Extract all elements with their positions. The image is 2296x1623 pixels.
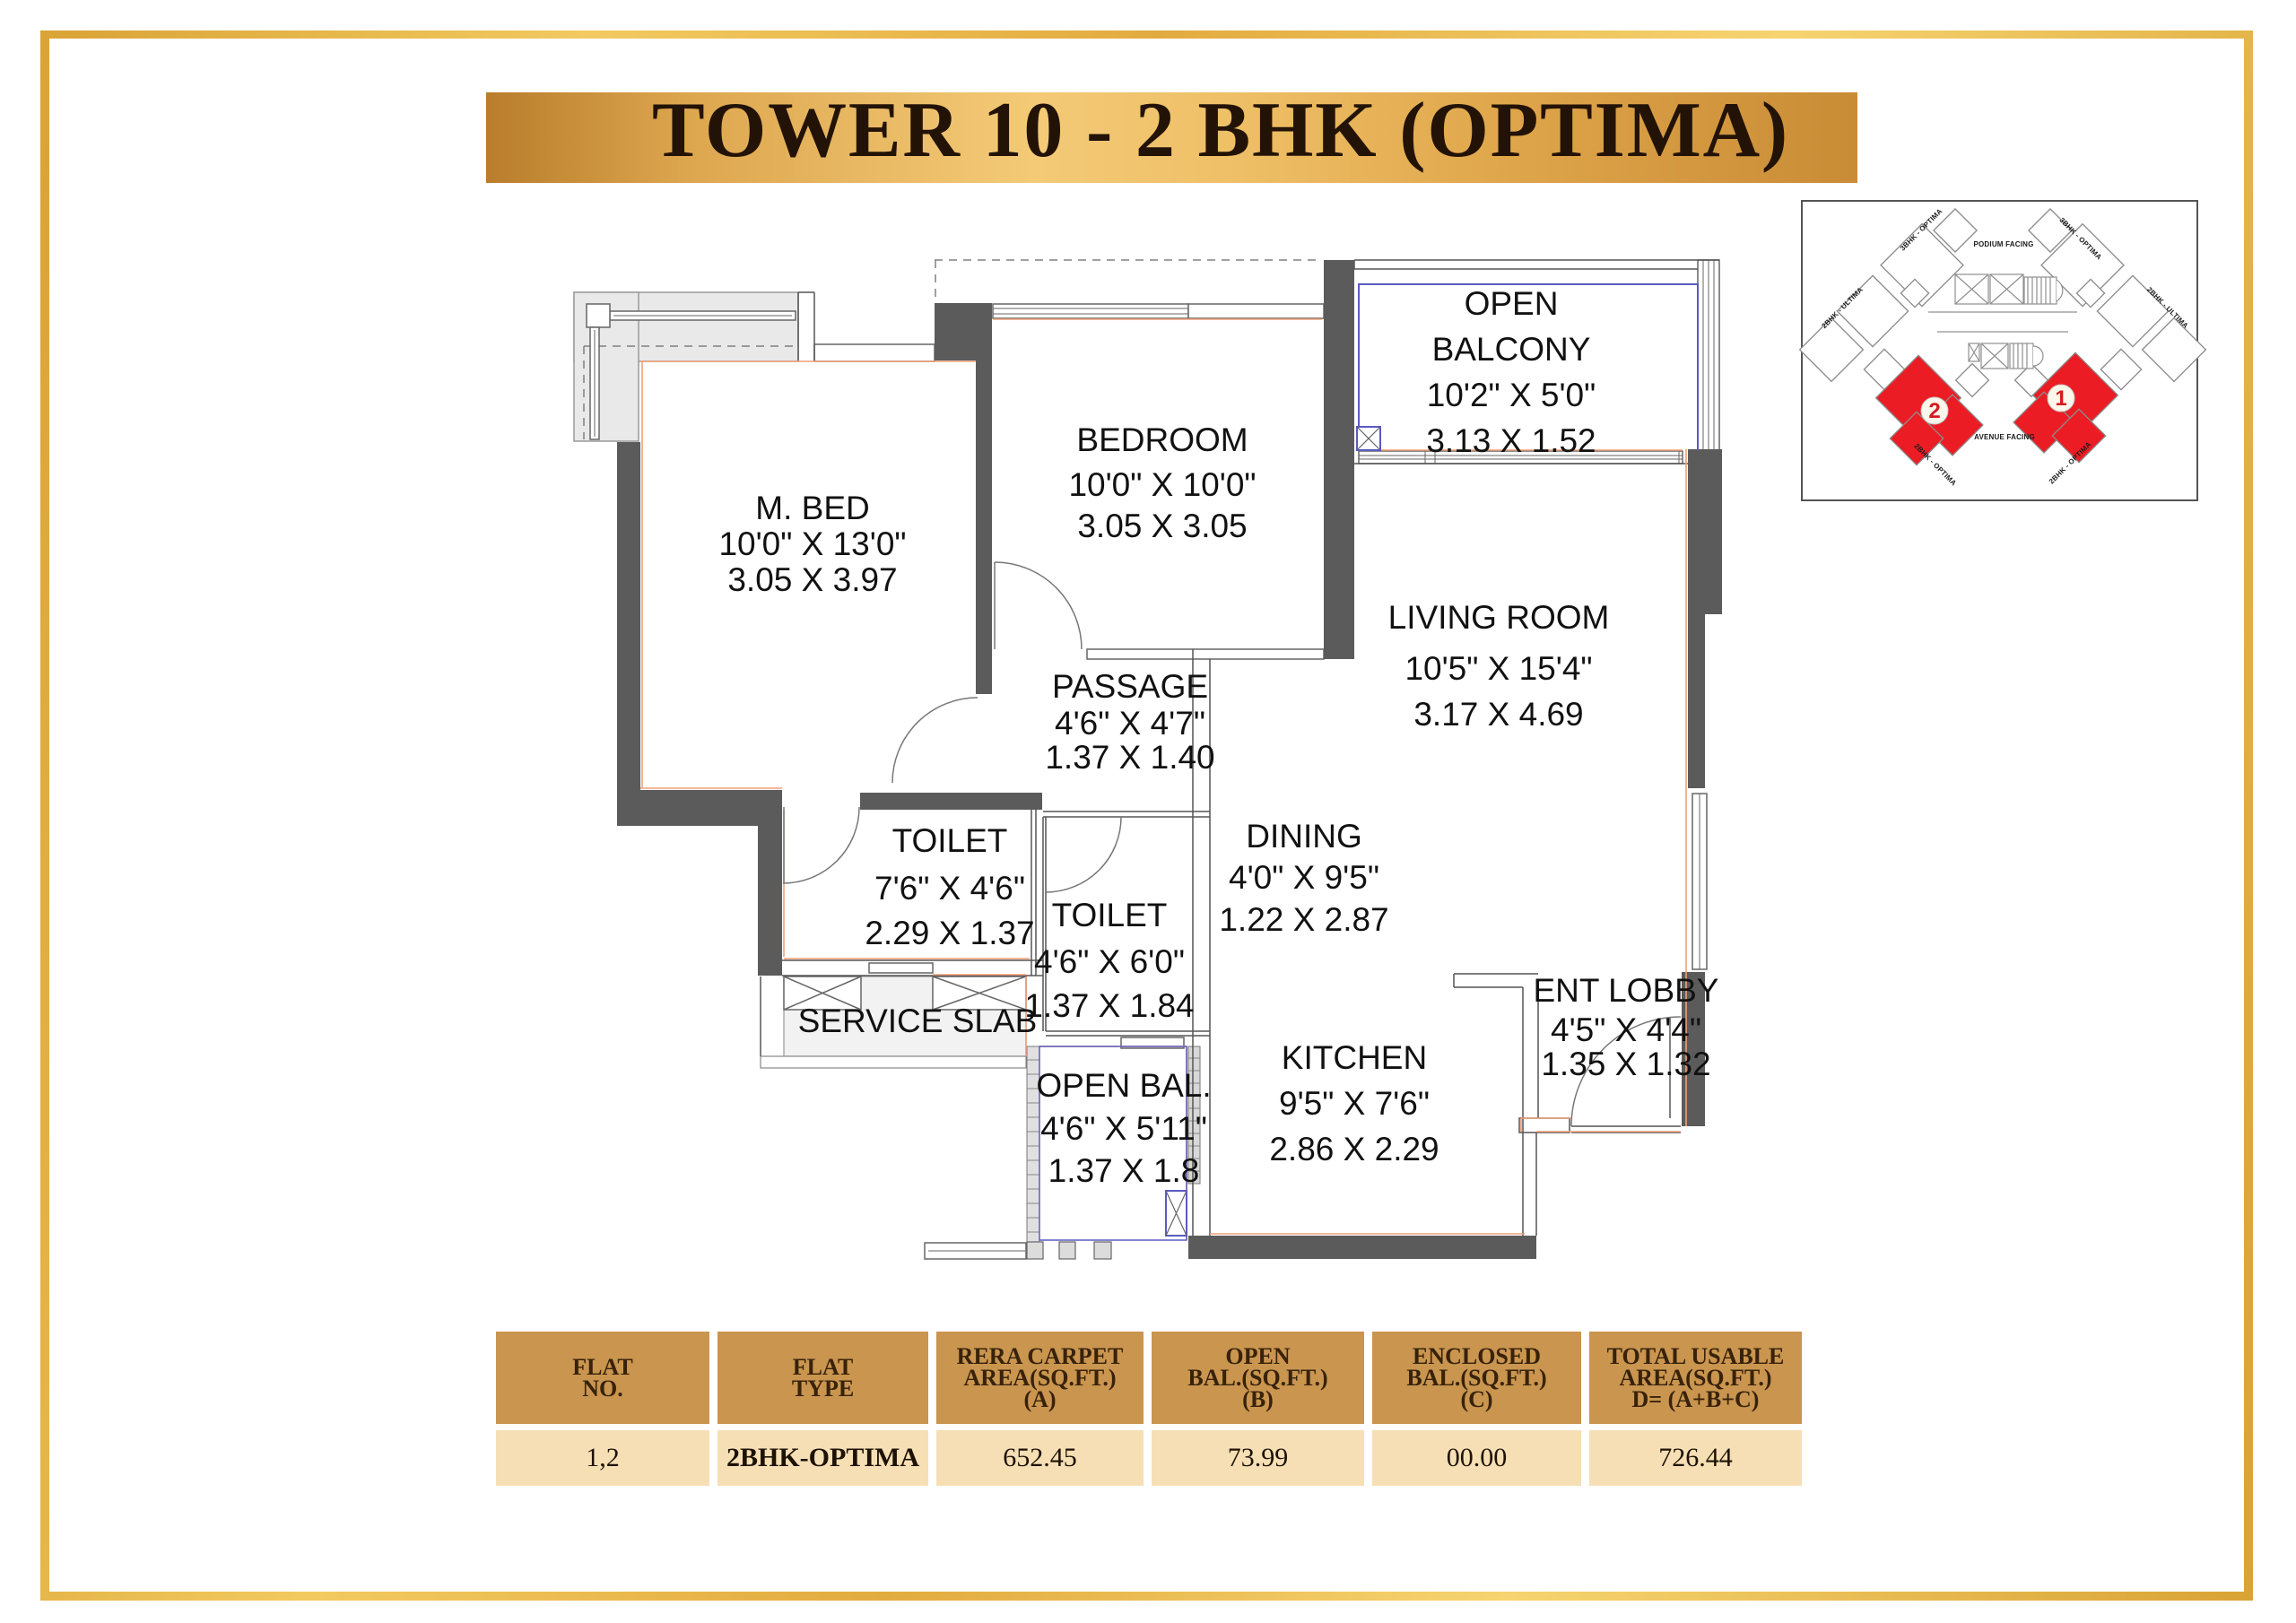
svg-text:OPEN: OPEN [1465, 285, 1559, 322]
svg-text:M. BED: M. BED [755, 490, 869, 526]
svg-text:3.05 X 3.05: 3.05 X 3.05 [1077, 508, 1247, 544]
svg-text:2.86 X 2.29: 2.86 X 2.29 [1269, 1131, 1439, 1167]
svg-text:TOILET: TOILET [892, 822, 1008, 859]
svg-text:SERVICE SLAB: SERVICE SLAB [798, 1002, 1038, 1039]
svg-text:1.37 X 1.40: 1.37 X 1.40 [1045, 739, 1214, 776]
svg-text:ENT LOBBY: ENT LOBBY [1533, 972, 1718, 1009]
svg-text:2.29 X 1.37: 2.29 X 1.37 [865, 915, 1034, 951]
svg-text:KITCHEN: KITCHEN [1282, 1039, 1427, 1076]
svg-text:4'6" X 6'0": 4'6" X 6'0" [1034, 943, 1185, 980]
svg-text:3.17 X 4.69: 3.17 X 4.69 [1413, 696, 1583, 733]
svg-text:4'5" X 4'4": 4'5" X 4'4" [1551, 1011, 1701, 1048]
svg-text:TOILET: TOILET [1052, 897, 1168, 933]
svg-text:OPEN BAL.: OPEN BAL. [1036, 1067, 1211, 1104]
svg-text:BEDROOM: BEDROOM [1076, 421, 1248, 458]
svg-text:PODIUM FACING: PODIUM FACING [1973, 240, 2033, 248]
svg-text:LIVING ROOM: LIVING ROOM [1388, 599, 1610, 636]
svg-text:3.05 X 3.97: 3.05 X 3.97 [727, 561, 897, 598]
svg-text:10'0" X 10'0": 10'0" X 10'0" [1068, 466, 1256, 503]
svg-text:4'0" X 9'5": 4'0" X 9'5" [1229, 859, 1379, 896]
svg-text:4'6" X 4'7": 4'6" X 4'7" [1055, 705, 1205, 742]
svg-text:1.37 X 1.8: 1.37 X 1.8 [1048, 1152, 1200, 1189]
svg-text:10'0" X 13'0": 10'0" X 13'0" [718, 525, 906, 562]
svg-text:1.37 X 1.84: 1.37 X 1.84 [1024, 987, 1194, 1024]
svg-text:10'5" X 15'4": 10'5" X 15'4" [1405, 650, 1592, 687]
svg-text:1: 1 [2055, 386, 2066, 411]
svg-text:4'6" X 5'11": 4'6" X 5'11" [1040, 1110, 1207, 1147]
svg-text:PASSAGE: PASSAGE [1052, 668, 1208, 705]
svg-text:1.35 X 1.32: 1.35 X 1.32 [1541, 1046, 1710, 1082]
svg-text:DINING: DINING [1246, 818, 1362, 855]
svg-text:2: 2 [1928, 399, 1940, 423]
svg-text:1.22 X 2.87: 1.22 X 2.87 [1219, 901, 1388, 938]
svg-text:9'5" X 7'6": 9'5" X 7'6" [1279, 1085, 1430, 1122]
svg-text:BALCONY: BALCONY [1432, 331, 1591, 368]
svg-text:10'2" X 5'0": 10'2" X 5'0" [1427, 377, 1596, 413]
svg-text:3.13 X 1.52: 3.13 X 1.52 [1426, 422, 1596, 459]
svg-text:AVENUE FACING: AVENUE FACING [1974, 433, 2035, 441]
svg-text:7'6" X 4'6": 7'6" X 4'6" [874, 870, 1025, 907]
